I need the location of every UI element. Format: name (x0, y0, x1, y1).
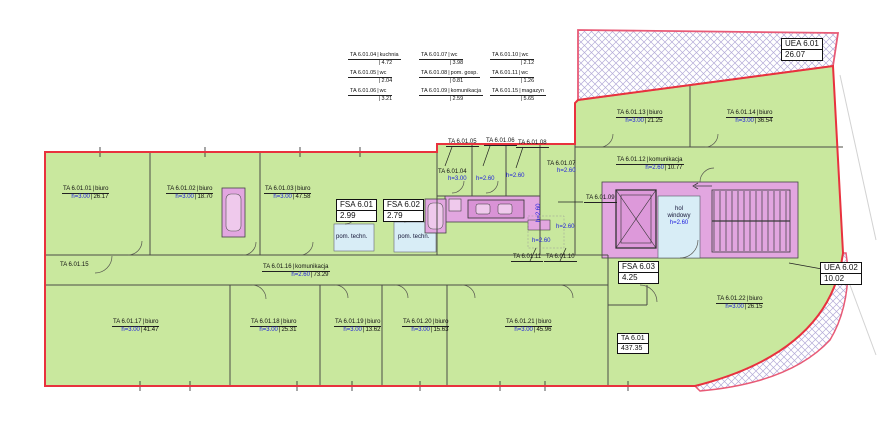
height-label-vertical: h=2.60 (536, 203, 542, 222)
elevator-hall-label: holwindowyh=2.60 (658, 206, 700, 227)
tech-room-label: pom. techn. (336, 234, 367, 241)
elevator-shaft (616, 190, 656, 248)
legend-entry: TA 6.01.08|pom. gosp.|0.81 (419, 70, 480, 85)
height-label: h=2.60 (476, 176, 495, 182)
floorplan-canvas: TA 6.01.04|kuchnia|4.72 TA 6.01.05|wc|2.… (0, 0, 877, 421)
legend-entry: TA 6.01.05|wc|2.04 (348, 70, 392, 85)
room-label-15: TA 6.01.15 (58, 262, 91, 269)
total-area-box: TA 6.01437.35 (617, 333, 649, 354)
wc-block-left (222, 188, 245, 237)
height-label: h=2.60 (506, 173, 525, 179)
leader-label-06: TA 6.01.06 (484, 138, 517, 146)
leader-label-09: TA 6.01.09 (584, 195, 617, 203)
legend-entry: TA 6.01.04|kuchnia|4.72 (348, 52, 401, 67)
fsa1-box: FSA 6.012.99 (336, 199, 377, 222)
wc-block-mid (425, 199, 446, 233)
height-label: h=2.60 (532, 238, 551, 244)
room-label-02: TA 6.01.02|biuroh=3.00|18.70 (166, 186, 213, 201)
leader-label-05: TA 6.01.05 (446, 139, 479, 147)
legend-entry: TA 6.01.11|wc|1.26 (490, 70, 534, 85)
room-label-22: TA 6.01.22|biuroh=3.00|26.15 (716, 296, 763, 311)
room-label-04: TA 6.01.04h=3.00 (437, 169, 468, 183)
legend-entry: TA 6.01.09|komunikacja|2.59 (419, 88, 483, 103)
uea1-box: UEA 6.0126.07 (781, 38, 823, 61)
room-label-17: TA 6.01.17|biuroh=3.00|41.47 (112, 319, 159, 334)
leader-label-08: TA 6.01.08 (516, 140, 549, 148)
room-label-21: TA 6.01.21|biuroh=3.00|45.96 (505, 319, 552, 334)
fsa3-box: FSA 6.034.25 (618, 261, 659, 284)
context-lines (840, 75, 876, 355)
fsa2-box: FSA 6.022.79 (383, 199, 424, 222)
room-label-03: TA 6.01.03|biuroh=3.00|47.58 (264, 186, 311, 201)
tech-room-label: pom. techn. (398, 234, 429, 241)
legend-entry: TA 6.01.10|wc|2.12 (490, 52, 534, 67)
leader-label-10: TA 6.01.10 (544, 254, 577, 262)
legend-entry: TA 6.01.06|wc|3.21 (348, 88, 392, 103)
room-label-01: TA 6.01.01|biuroh=3.00|26.17 (62, 186, 109, 201)
room-label-12: TA 6.01.12|komunikacjah=2.60|10.77 (616, 157, 684, 172)
room-label-07: TA 6.01.07h=2.60 (546, 161, 577, 175)
legend-entry: TA 6.01.07|wc|3.98 (419, 52, 463, 67)
room-label-13: TA 6.01.13|biuroh=3.00|21.25 (616, 110, 663, 125)
uea2-box: UEA 6.0210.02 (820, 262, 862, 285)
room-label-16: TA 6.01.16|komunikacjah=2.60|73.29 (262, 264, 330, 279)
room-label-20: TA 6.01.20|biuroh=3.00|15.63 (402, 319, 449, 334)
leader-label-11: TA 6.01.11 (511, 254, 543, 262)
room-label-14: TA 6.01.14|biuroh=3.00|36.54 (726, 110, 773, 125)
room-label-18: TA 6.01.18|biuroh=3.00|25.31 (250, 319, 297, 334)
legend-entry: TA 6.01.15|magazyn|5.65 (490, 88, 546, 103)
room-label-19: TA 6.01.19|biuroh=3.00|13.62 (334, 319, 381, 334)
height-label: h=2.60 (556, 224, 575, 230)
